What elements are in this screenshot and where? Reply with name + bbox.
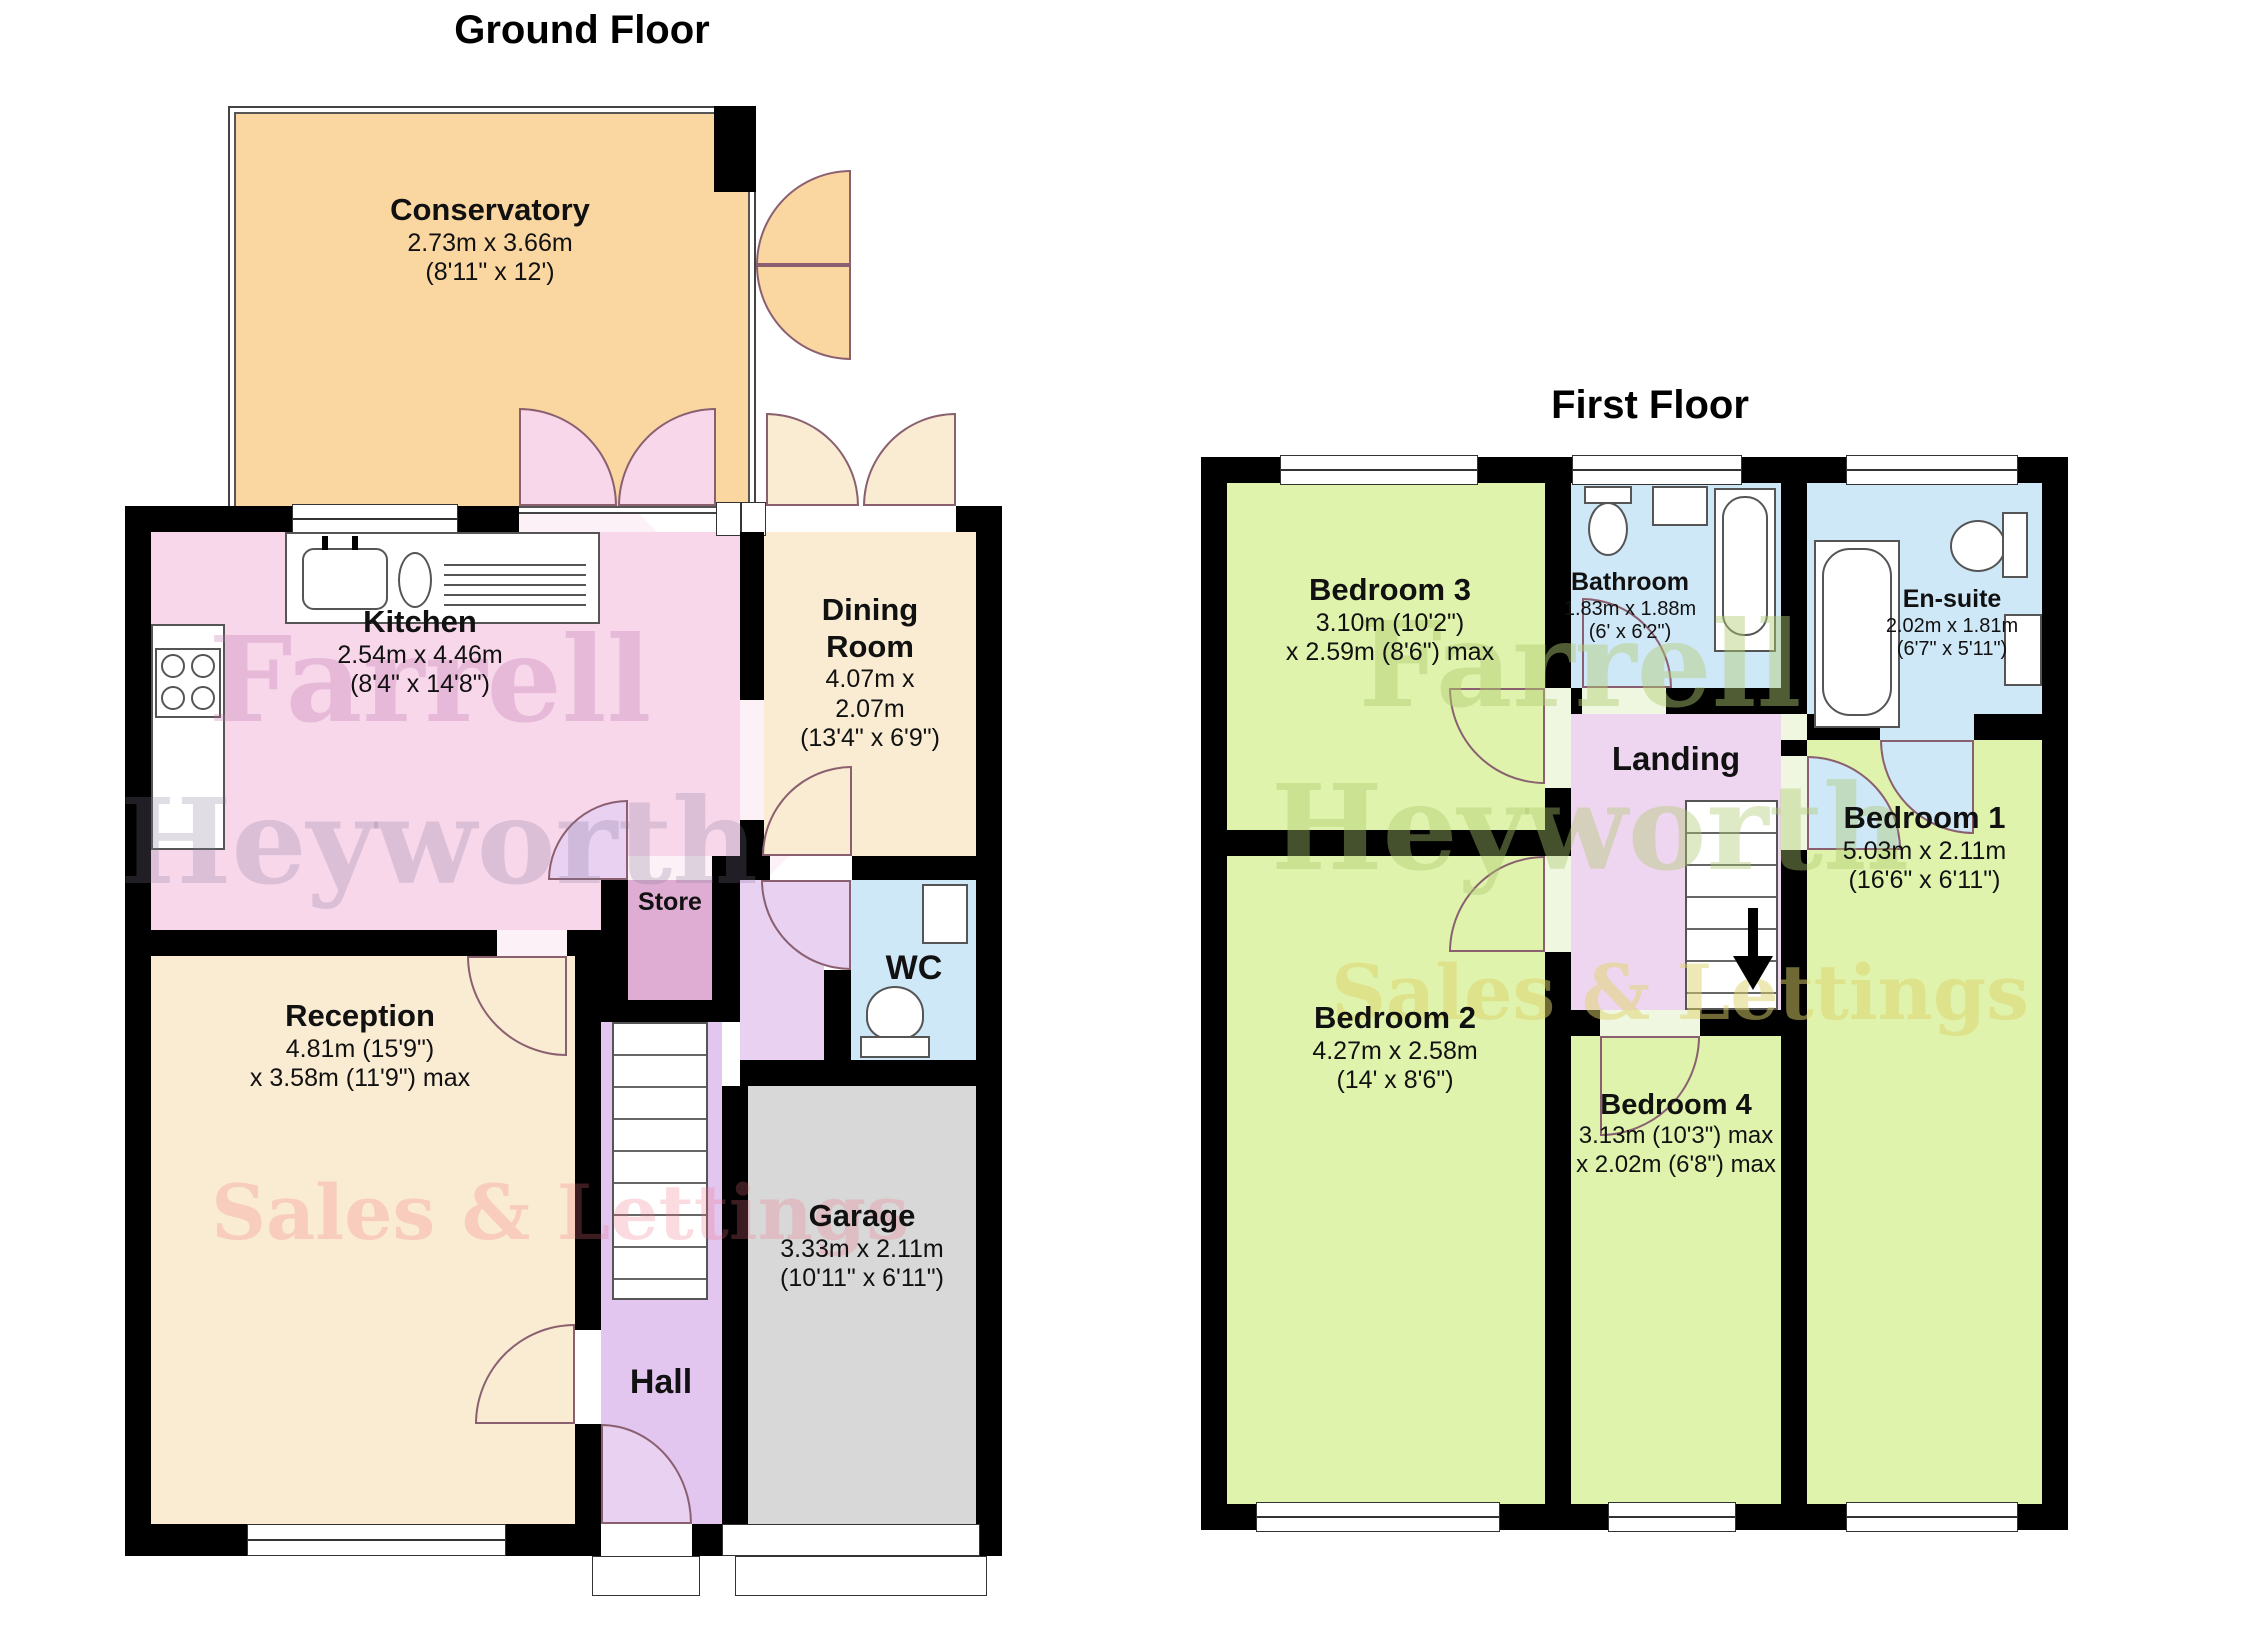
hob-burner-3 — [161, 686, 185, 710]
conservatory-label: Conservatory 2.73m x 3.66m (8'11" x 12') — [250, 192, 730, 288]
dining-name: Dining Room — [795, 592, 945, 665]
ensuite-label: En-suite 2.02m x 1.81m (6'7" x 5'11") — [1852, 585, 2052, 662]
front-door-step — [592, 1556, 700, 1596]
wall-bottom-4 — [980, 1524, 1002, 1556]
reception-label: Reception 4.81m (15'9") x 3.58m (11'9") … — [160, 998, 560, 1094]
wc-name: WC — [858, 948, 970, 988]
store-name: Store — [626, 888, 714, 918]
kitchen-label: Kitchen 2.54m x 4.46m (8'4" x 14'8") — [230, 604, 610, 700]
bedroom4-dim-2: x 2.02m (6'8") max — [1550, 1151, 1802, 1179]
dining-label: Dining Room 4.07m x 2.07m (13'4" x 6'9") — [795, 592, 945, 754]
ff-wall-bottom-4 — [2018, 1504, 2068, 1530]
ff-wall-landing-bed1-1 — [1781, 740, 1807, 756]
dining-dim-1: 4.07m x 2.07m — [795, 665, 945, 724]
ff-wall-bathroom-bottom-2 — [1666, 688, 1781, 714]
ensuite-name: En-suite — [1852, 585, 2052, 615]
hob-burner-2 — [191, 654, 215, 678]
bedroom4-dim-1: 3.13m (10'3") max — [1550, 1122, 1802, 1150]
ff-wall-bath-ensuite — [1781, 483, 1807, 714]
dining-french-door-right-arc — [863, 413, 956, 506]
bedroom3-dim-1: 3.10m (10'2") — [1240, 609, 1540, 639]
wall-store-top-2 — [712, 856, 740, 880]
bedroom3-label: Bedroom 3 3.10m (10'2") x 2.59m (8'6") m… — [1240, 572, 1540, 668]
wall-reception-right-1 — [575, 956, 601, 1330]
conservatory-dim-1: 2.73m x 3.66m — [250, 229, 730, 259]
garage-room — [748, 1086, 976, 1524]
bedroom1-label: Bedroom 1 5.03m x 2.11m (16'6" x 6'11") — [1807, 800, 2042, 896]
garage-label: Garage 3.33m x 2.11m (10'11" x 6'11") — [748, 1198, 976, 1294]
garage-dim-2: (10'11" x 6'11") — [748, 1264, 976, 1294]
ff-wall-top-2 — [1478, 457, 1572, 483]
bathroom-label: Bathroom 1.83m x 1.88m (6' x 6'2") — [1535, 568, 1725, 645]
wall-kitchen-dining-1 — [740, 532, 764, 700]
reception-window — [247, 1524, 506, 1556]
ensuite-toilet-tank — [2002, 512, 2028, 578]
bedroom3-dim-2: x 2.59m (8'6") max — [1240, 638, 1540, 668]
bedroom1-dim-1: 5.03m x 2.11m — [1807, 837, 2042, 867]
garage-door — [722, 1524, 980, 1556]
wall-dining-bottom-2 — [852, 856, 976, 880]
reception-dim-2: x 3.58m (11'9") max — [160, 1064, 560, 1094]
bedroom2-dim-2: (14' x 8'6") — [1240, 1066, 1550, 1096]
conservatory-dim-2: (8'11" x 12') — [250, 258, 730, 288]
wall-conservatory-corner — [714, 106, 756, 192]
bedroom2-label: Bedroom 2 4.27m x 2.58m (14' x 8'6") — [1240, 1000, 1550, 1096]
bedroom1-window — [1846, 1502, 2018, 1532]
stairs-arrow-head — [1733, 956, 1773, 990]
conservatory-dining-doorframe — [716, 502, 766, 536]
wall-wc-left — [824, 970, 851, 1060]
kitchen-sink-bowl — [302, 548, 388, 610]
wc-toilet-tank — [860, 1036, 930, 1058]
ff-wall-landing-bottom-1 — [1571, 1010, 1600, 1036]
bedroom1-name: Bedroom 1 — [1807, 800, 2042, 837]
wall-garage-top — [740, 1060, 976, 1086]
ff-wall-bathroom-bottom-1 — [1571, 688, 1582, 714]
ff-wall-ensuite-bottom-2 — [1974, 714, 2042, 740]
dining-dim-2: (13'4" x 6'9") — [795, 724, 945, 754]
wall-reception-right-2 — [575, 1424, 601, 1524]
bedroom2-name: Bedroom 2 — [1240, 1000, 1550, 1037]
wc-sink — [922, 884, 968, 944]
wall-bottom-1 — [125, 1524, 247, 1556]
landing-name: Landing — [1571, 740, 1781, 779]
wall-bottom-2 — [506, 1524, 601, 1556]
reception-name: Reception — [160, 998, 560, 1035]
bedroom4-window — [1608, 1502, 1736, 1532]
ground-floor-title: Ground Floor — [332, 8, 832, 53]
bedroom4-name: Bedroom 4 — [1550, 1088, 1802, 1122]
kitchen-window — [292, 504, 458, 534]
wall-dining-bottom-1 — [740, 856, 770, 880]
bedroom2-dim-1: 4.27m x 2.58m — [1240, 1037, 1550, 1067]
bedroom3-name: Bedroom 3 — [1240, 572, 1540, 609]
bathroom-dim-2: (6' x 6'2") — [1535, 621, 1725, 645]
ff-wall-bed3-bed2 — [1227, 830, 1545, 856]
kitchen-tap-right — [352, 536, 358, 550]
wall-garage-left — [722, 1086, 748, 1524]
bathroom-bath-inner — [1722, 496, 1768, 636]
conservatory-french-door-top-arc — [756, 170, 851, 265]
bathroom-name: Bathroom — [1535, 568, 1725, 598]
wall-bottom-3 — [692, 1524, 722, 1556]
wall-store-bottom — [628, 1000, 712, 1022]
landing-label: Landing — [1571, 740, 1781, 779]
ensuite-dim-2: (6'7" x 5'11") — [1852, 638, 2052, 662]
wall-kitchen-dining-2 — [740, 820, 764, 856]
kitchen-dim-2: (8'4" x 14'8") — [230, 670, 610, 700]
kitchen-sink-oval — [398, 552, 432, 608]
ensuite-toilet-bowl — [1950, 520, 2006, 572]
ff-wall-landing-bottom-2 — [1700, 1010, 1807, 1036]
wall-store-left — [601, 880, 628, 1022]
bathroom-sink — [1652, 486, 1708, 526]
wall-left — [125, 506, 151, 1556]
hall-label: Hall — [601, 1362, 721, 1402]
wall-right — [976, 506, 1002, 1556]
wall-store-right — [712, 880, 740, 1022]
store-label: Store — [626, 888, 714, 918]
hob-burner-4 — [191, 686, 215, 710]
first-floor-title: First Floor — [1400, 383, 1900, 428]
conservatory-french-door-bottom-arc — [756, 265, 851, 360]
garage-name: Garage — [748, 1198, 976, 1235]
floorplan-canvas: Ground Floor Farrell Heyworth Sales & Le… — [0, 0, 2256, 1640]
bedroom1-dim-2: (16'6" x 6'11") — [1807, 866, 2042, 896]
kitchen-hob — [155, 648, 221, 718]
kitchen-tap-left — [322, 536, 328, 550]
bedroom2-room — [1227, 856, 1545, 1504]
bedroom2-window — [1256, 1502, 1500, 1532]
ensuite-window — [1846, 455, 2018, 485]
stairs-arrow-shaft — [1748, 908, 1758, 958]
reception-dim-1: 4.81m (15'9") — [160, 1035, 560, 1065]
garage-apron — [735, 1556, 987, 1596]
kitchen-name: Kitchen — [230, 604, 610, 641]
bathroom-dim-1: 1.83m x 1.88m — [1535, 598, 1725, 622]
ff-wall-center-2 — [1545, 788, 1571, 856]
conservatory-name: Conservatory — [250, 192, 730, 229]
hob-burner-1 — [161, 654, 185, 678]
staircase-ground — [612, 1022, 708, 1300]
wall-top-2 — [458, 506, 519, 532]
wall-kitchen-reception-1 — [125, 930, 497, 956]
kitchen-dim-1: 2.54m x 4.46m — [230, 641, 610, 671]
wc-label: WC — [858, 948, 970, 988]
hall-name: Hall — [601, 1362, 721, 1402]
dining-french-door-left-arc — [766, 413, 859, 506]
wall-kitchen-reception-2 — [567, 930, 601, 956]
ff-wall-bottom-2 — [1500, 1504, 1608, 1530]
bathroom-toilet-bowl — [1588, 502, 1628, 556]
bedroom3-window — [1280, 455, 1478, 485]
ff-wall-left — [1201, 457, 1227, 1530]
bathroom-window — [1572, 455, 1742, 485]
bedroom4-label: Bedroom 4 3.13m (10'3") max x 2.02m (6'8… — [1550, 1088, 1802, 1179]
ff-wall-bottom-1 — [1201, 1504, 1256, 1530]
ff-wall-bottom-3 — [1736, 1504, 1846, 1530]
garage-dim-1: 3.33m x 2.11m — [748, 1235, 976, 1265]
wc-toilet-bowl — [866, 986, 924, 1040]
ff-wall-top-3 — [1742, 457, 1846, 483]
ensuite-dim-1: 2.02m x 1.81m — [1852, 615, 2052, 639]
